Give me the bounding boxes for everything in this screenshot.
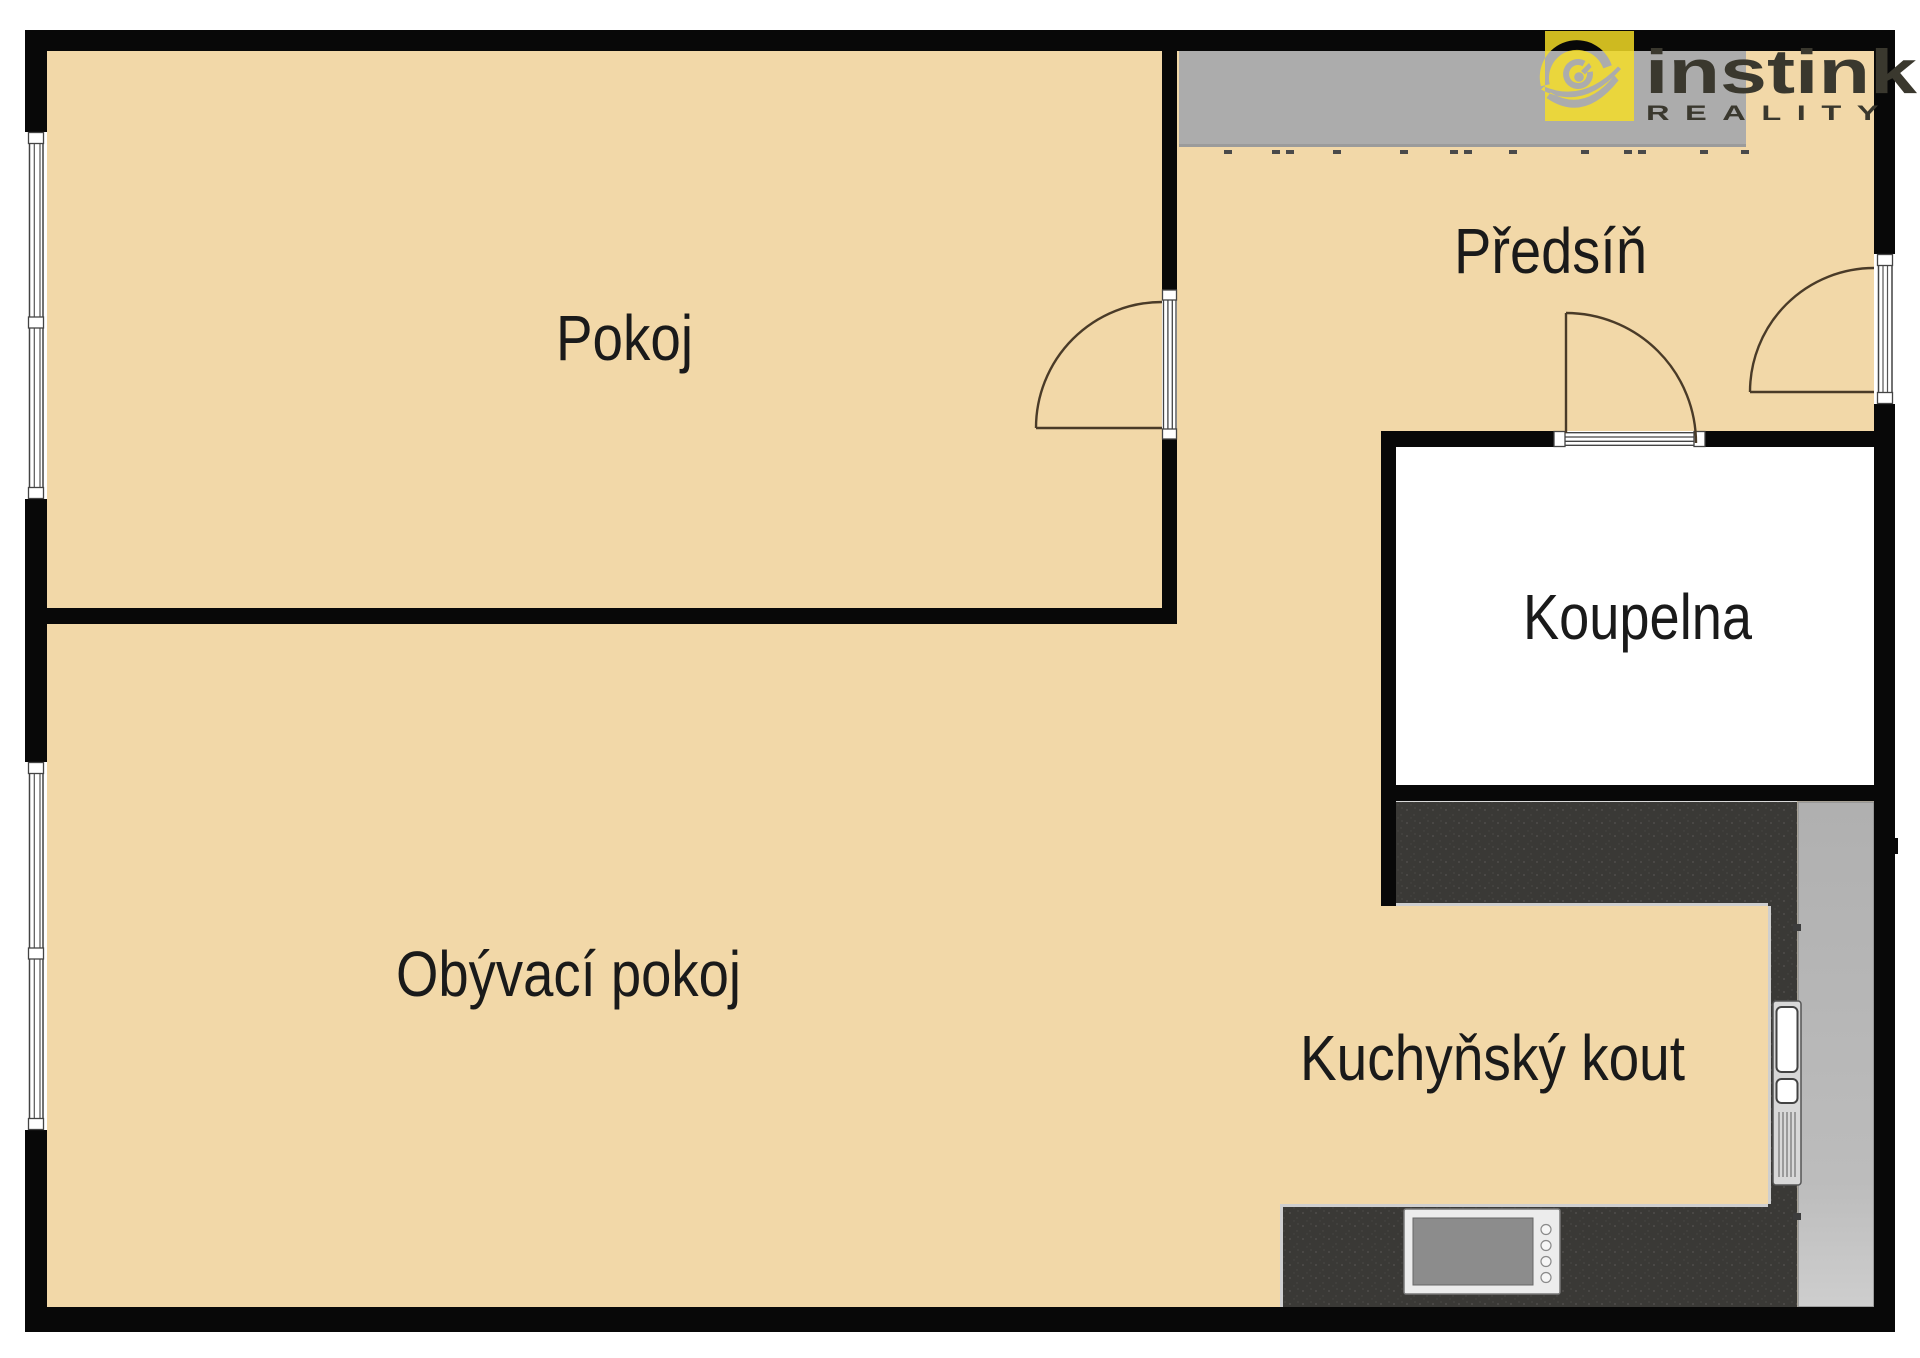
svg-text:Kuchyňský kout: Kuchyňský kout xyxy=(1300,1022,1685,1094)
svg-text:Předsíň: Předsíň xyxy=(1454,215,1647,287)
svg-text:Koupelna: Koupelna xyxy=(1523,581,1752,653)
svg-text:REALITY: REALITY xyxy=(1646,102,1894,125)
svg-text:Obývací pokoj: Obývací pokoj xyxy=(396,938,741,1010)
svg-text:Pokoj: Pokoj xyxy=(556,302,693,374)
svg-text:instink: instink xyxy=(1645,38,1918,107)
